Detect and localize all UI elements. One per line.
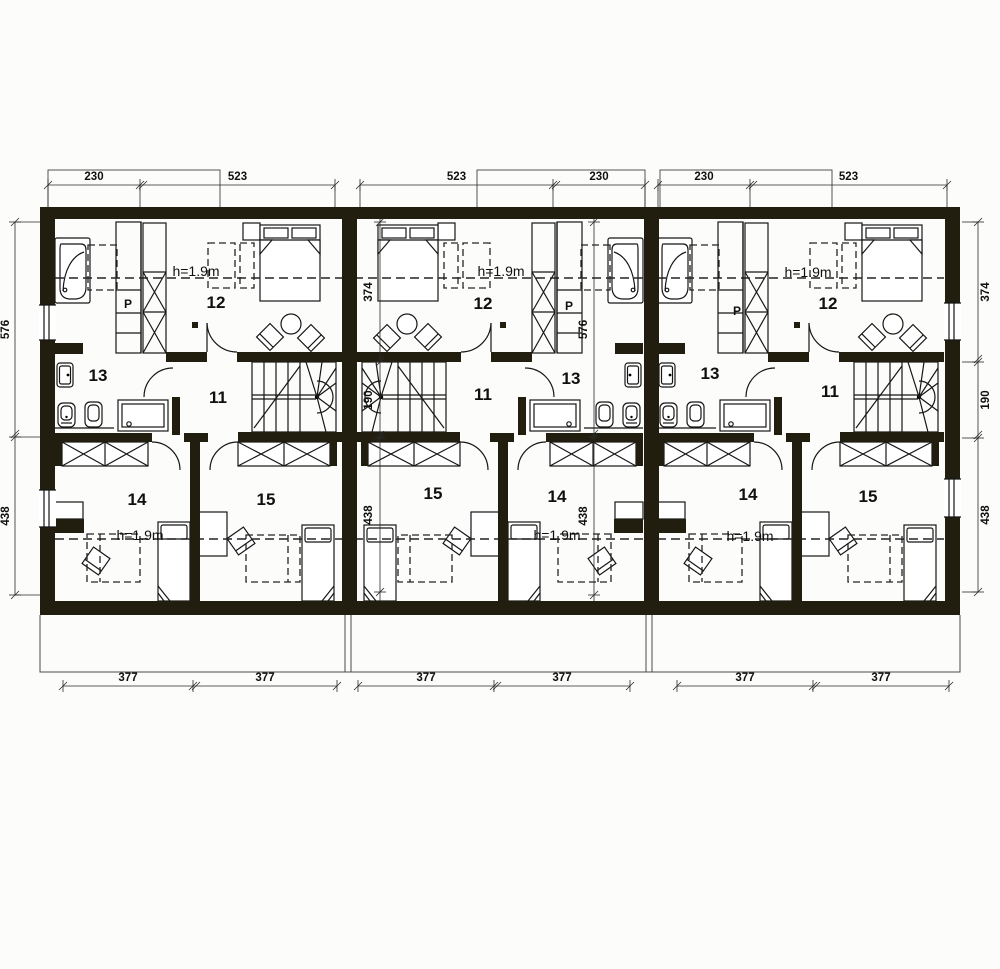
window xyxy=(39,305,56,340)
back-wall xyxy=(40,601,960,615)
ceiling-height-label: h=1.9m xyxy=(172,263,219,279)
room-label-bathroom: 13 xyxy=(89,366,108,385)
dimension-label: 377 xyxy=(118,672,137,684)
dimension-chain: 230523 xyxy=(44,171,339,207)
ceiling-height-label: h=1.9m xyxy=(533,527,580,543)
ceiling-height-label: h=1.9m xyxy=(116,527,163,543)
dimension-label: 374 xyxy=(363,282,375,302)
dimension-label: 230 xyxy=(589,171,608,183)
dormer-outlines xyxy=(48,170,832,208)
dimension-label: 377 xyxy=(735,672,754,684)
dimension-label: 377 xyxy=(416,672,435,684)
room-label-upper_bedroom: 12 xyxy=(474,294,493,313)
right-wall xyxy=(945,207,960,615)
party-wall-2 xyxy=(644,207,659,615)
dimension-label: 377 xyxy=(871,672,890,684)
dimension-chain: 576438 xyxy=(0,218,40,599)
closet-label: P xyxy=(565,299,573,313)
dimension-label: 438 xyxy=(578,506,590,526)
closet-label: P xyxy=(124,297,132,311)
ceiling-height-label: h=1.9m xyxy=(477,263,524,279)
floor-plan-page: 2305235232302305233773773773773773775764… xyxy=(0,0,1000,969)
room-label-lower_bedroom_right: 15 xyxy=(424,484,443,503)
room-label-bathroom: 13 xyxy=(701,364,720,383)
dimension-label: 438 xyxy=(980,505,992,525)
window xyxy=(39,490,56,527)
dormer-outline xyxy=(477,170,645,208)
dimension-label: 438 xyxy=(0,506,12,526)
dimension-label: 374 xyxy=(980,282,992,302)
terrace-strip xyxy=(40,615,960,672)
room-label-hall: 11 xyxy=(209,388,227,407)
room-label-upper_bedroom: 12 xyxy=(207,293,226,312)
dimension-chain: 230523 xyxy=(654,171,951,207)
room-label-lower_bedroom_left: 14 xyxy=(128,490,147,509)
room-label-lower_bedroom_left: 14 xyxy=(548,487,567,506)
room-label-bathroom: 13 xyxy=(562,369,581,388)
ceiling-height-label: h=1.9m xyxy=(784,264,831,280)
dimension-chain: 377377 xyxy=(59,672,341,692)
closet-label: P xyxy=(733,304,741,318)
dimension-chain: 377377 xyxy=(354,672,634,692)
dimension-chain: 523230 xyxy=(356,171,649,207)
party-wall-1 xyxy=(342,207,357,615)
window xyxy=(944,303,961,340)
dimension-label: 190 xyxy=(980,390,992,409)
dimension-chain: 377377 xyxy=(673,672,953,692)
dimension-label: 190 xyxy=(363,390,375,409)
dimension-label: 523 xyxy=(839,171,858,183)
dimension-label: 576 xyxy=(0,320,12,339)
dimension-label: 523 xyxy=(447,171,466,183)
dimension-label: 438 xyxy=(363,505,375,525)
left-wall xyxy=(40,207,55,615)
dimension-label: 377 xyxy=(255,672,274,684)
dimension-label: 230 xyxy=(694,171,713,183)
room-label-lower_bedroom_right: 15 xyxy=(257,490,276,509)
room-label-upper_bedroom: 12 xyxy=(819,294,838,313)
dimension-label: 230 xyxy=(84,171,103,183)
room-label-lower_bedroom_right: 15 xyxy=(859,487,878,506)
dormer-outline xyxy=(48,170,220,208)
front-wall xyxy=(40,207,960,219)
dimension-label: 523 xyxy=(228,171,247,183)
floor-plan-drawing: 2305235232302305233773773773773773775764… xyxy=(0,0,1000,969)
dimension-label: 576 xyxy=(578,320,590,339)
dimension-label: 377 xyxy=(552,672,571,684)
room-label-hall: 11 xyxy=(474,385,492,404)
dimension-chain: 374190438 xyxy=(962,218,992,596)
room-label-hall: 11 xyxy=(821,382,839,401)
ceiling-height-label: h=1.9m xyxy=(726,528,773,544)
room-label-lower_bedroom_left: 14 xyxy=(739,485,758,504)
window xyxy=(944,479,961,517)
